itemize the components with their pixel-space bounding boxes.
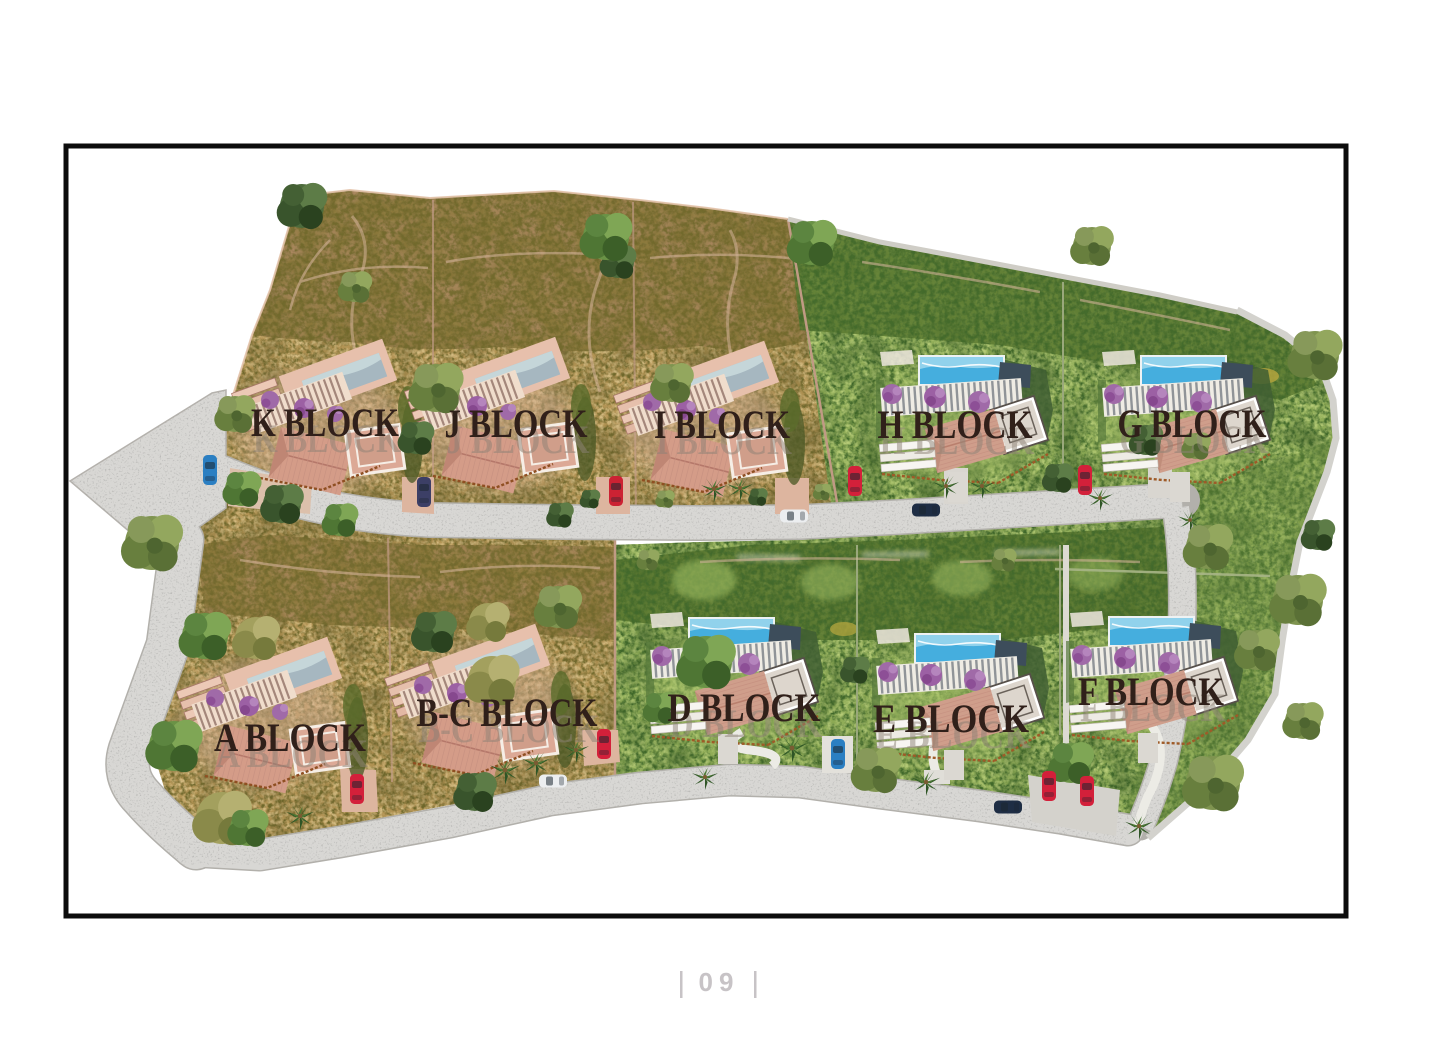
svg-text:A BLOCK: A BLOCK: [214, 715, 366, 760]
svg-text:K BLOCK: K BLOCK: [251, 400, 399, 445]
svg-text:J BLOCK: J BLOCK: [445, 401, 588, 446]
svg-text:B-C BLOCK: B-C BLOCK: [417, 690, 598, 735]
svg-text:09: 09: [699, 967, 740, 997]
svg-text:H BLOCK: H BLOCK: [878, 402, 1033, 447]
svg-text:E BLOCK: E BLOCK: [873, 696, 1029, 741]
svg-text:D BLOCK: D BLOCK: [668, 685, 821, 730]
svg-text:I BLOCK: I BLOCK: [654, 402, 790, 447]
svg-text:G BLOCK: G BLOCK: [1118, 401, 1267, 446]
svg-text:F BLOCK: F BLOCK: [1078, 669, 1224, 714]
